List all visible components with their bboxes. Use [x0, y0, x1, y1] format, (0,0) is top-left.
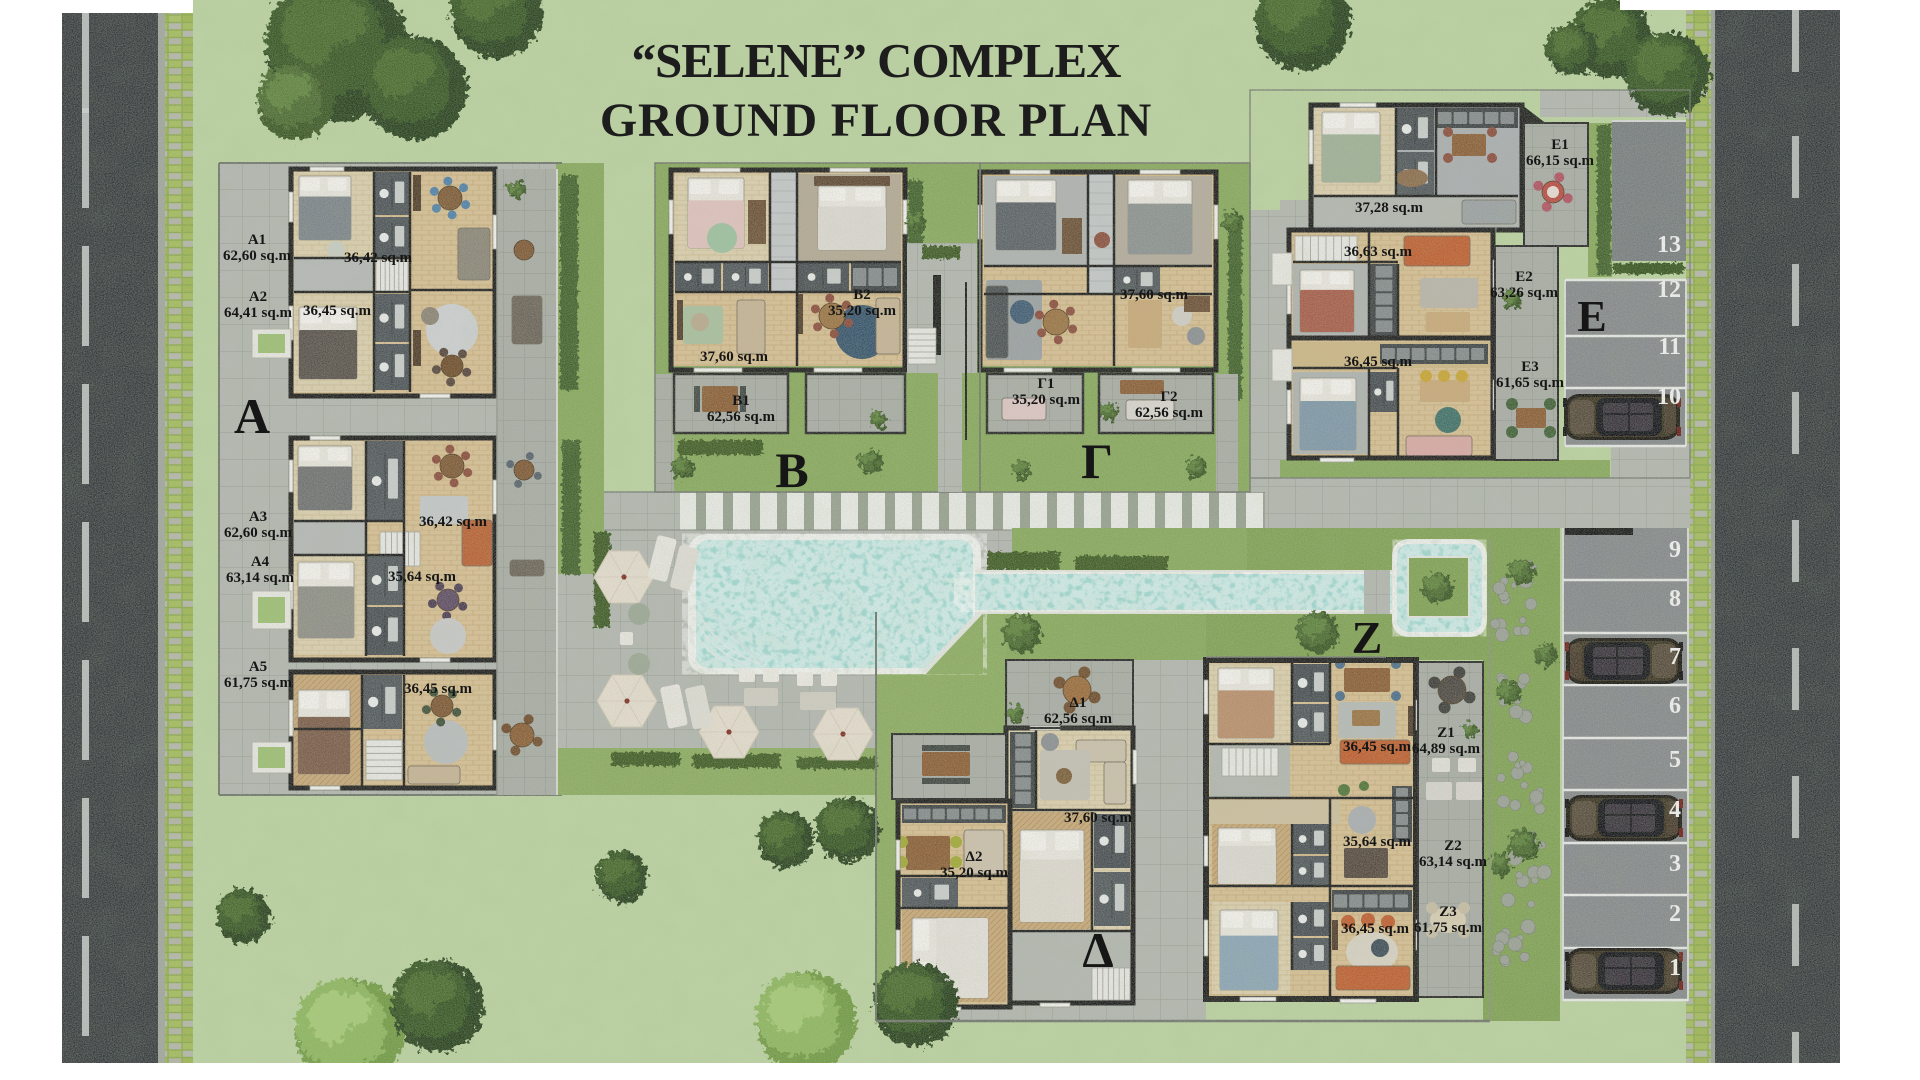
svg-text:64,89 sq.m: 64,89 sq.m [1412, 741, 1480, 757]
svg-text:66,15 sq.m: 66,15 sq.m [1526, 153, 1594, 169]
svg-text:B1: B1 [732, 393, 750, 409]
svg-text:62,60 sq.m: 62,60 sq.m [224, 525, 292, 541]
svg-text:36,42 sq.m: 36,42 sq.m [419, 514, 487, 530]
svg-text:A1: A1 [248, 232, 266, 248]
svg-text:A4: A4 [251, 554, 270, 570]
svg-text:A2: A2 [249, 289, 267, 305]
svg-text:Z3: Z3 [1439, 904, 1457, 920]
svg-text:63,26 sq.m: 63,26 sq.m [1490, 285, 1558, 301]
svg-text:64,41 sq.m: 64,41 sq.m [224, 305, 292, 321]
svg-text:B: B [775, 442, 808, 498]
svg-text:Δ1: Δ1 [1070, 695, 1087, 711]
svg-text:B2: B2 [853, 287, 871, 303]
svg-text:61,75 sq.m: 61,75 sq.m [1414, 920, 1482, 936]
svg-text:37,60 sq.m: 37,60 sq.m [1120, 287, 1188, 303]
svg-text:62,56 sq.m: 62,56 sq.m [1044, 711, 1112, 727]
svg-text:Γ: Γ [1081, 433, 1113, 489]
svg-text:Z1: Z1 [1437, 725, 1455, 741]
svg-text:36,45 sq.m: 36,45 sq.m [404, 681, 472, 697]
svg-text:37,60 sq.m: 37,60 sq.m [700, 349, 768, 365]
svg-text:37,60 sq.m: 37,60 sq.m [1064, 810, 1132, 826]
svg-text:36,42 sq.m: 36,42 sq.m [344, 250, 412, 266]
svg-text:Z: Z [1352, 612, 1383, 663]
svg-text:Δ: Δ [1082, 922, 1113, 978]
svg-text:E1: E1 [1551, 137, 1569, 153]
svg-text:63,14 sq.m: 63,14 sq.m [226, 570, 294, 586]
svg-text:E3: E3 [1521, 359, 1539, 375]
svg-text:Γ2: Γ2 [1160, 389, 1177, 405]
svg-text:37,28 sq.m: 37,28 sq.m [1355, 200, 1423, 216]
svg-text:36,45 sq.m: 36,45 sq.m [1344, 354, 1412, 370]
svg-text:Z2: Z2 [1444, 838, 1462, 854]
svg-text:Δ2: Δ2 [966, 849, 983, 865]
svg-text:35,20 sq.m: 35,20 sq.m [1012, 392, 1080, 408]
svg-text:GROUND FLOOR PLAN: GROUND FLOOR PLAN [600, 94, 1152, 147]
svg-text:62,56 sq.m: 62,56 sq.m [1135, 405, 1203, 421]
svg-text:35,64 sq.m: 35,64 sq.m [1343, 834, 1411, 850]
svg-text:35,20 sq.m: 35,20 sq.m [828, 303, 896, 319]
svg-text:61,65 sq.m: 61,65 sq.m [1496, 375, 1564, 391]
svg-text:35,20 sq.m: 35,20 sq.m [940, 865, 1008, 881]
svg-text:61,75 sq.m: 61,75 sq.m [224, 675, 292, 691]
svg-text:36,63 sq.m: 36,63 sq.m [1344, 244, 1412, 260]
svg-text:E2: E2 [1515, 269, 1533, 285]
svg-text:“SELENE” COMPLEX: “SELENE” COMPLEX [631, 33, 1121, 88]
svg-text:36,45 sq.m: 36,45 sq.m [303, 303, 371, 319]
svg-text:35,64 sq.m: 35,64 sq.m [388, 569, 456, 585]
svg-text:63,14 sq.m: 63,14 sq.m [1419, 854, 1487, 870]
svg-text:36,45 sq.m: 36,45 sq.m [1343, 739, 1411, 755]
svg-text:E: E [1577, 292, 1606, 341]
svg-text:62,60 sq.m: 62,60 sq.m [223, 248, 291, 264]
svg-text:A3: A3 [249, 509, 267, 525]
svg-text:Γ1: Γ1 [1037, 376, 1054, 392]
svg-text:36,45 sq.m: 36,45 sq.m [1341, 921, 1409, 937]
svg-text:A5: A5 [249, 659, 267, 675]
svg-text:A: A [234, 388, 270, 444]
svg-text:62,56 sq.m: 62,56 sq.m [707, 409, 775, 425]
